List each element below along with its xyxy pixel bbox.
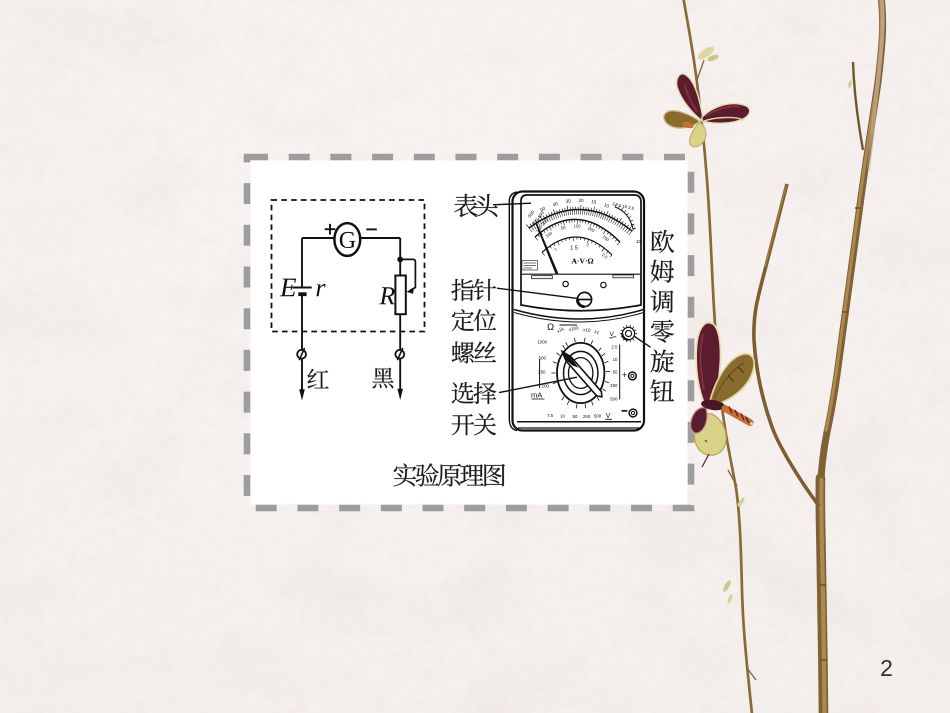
svg-text:50: 50 — [613, 370, 618, 375]
svg-text:0: 0 — [631, 223, 634, 228]
svg-text:V: V — [606, 413, 611, 420]
svg-text:1000: 1000 — [537, 340, 547, 345]
svg-text:20: 20 — [578, 198, 584, 203]
svg-text:50: 50 — [573, 414, 578, 419]
svg-text:500: 500 — [610, 397, 618, 402]
svg-text:7.5: 7.5 — [547, 413, 554, 418]
svg-text:+: + — [622, 370, 627, 380]
svg-text:Ω: Ω — [547, 322, 554, 333]
svg-text:1 5: 1 5 — [570, 246, 578, 252]
svg-text:A·V·Ω: A·V·Ω — [571, 257, 593, 266]
svg-text:10: 10 — [636, 239, 642, 244]
svg-text:250: 250 — [610, 383, 618, 388]
svg-text:mA: mA — [531, 391, 542, 400]
svg-text:500: 500 — [594, 414, 602, 419]
svg-text:2.5: 2.5 — [611, 345, 618, 350]
svg-text:10: 10 — [560, 414, 565, 419]
svg-text:150: 150 — [573, 223, 581, 228]
svg-text:250: 250 — [583, 414, 591, 419]
svg-text:10: 10 — [613, 357, 618, 362]
